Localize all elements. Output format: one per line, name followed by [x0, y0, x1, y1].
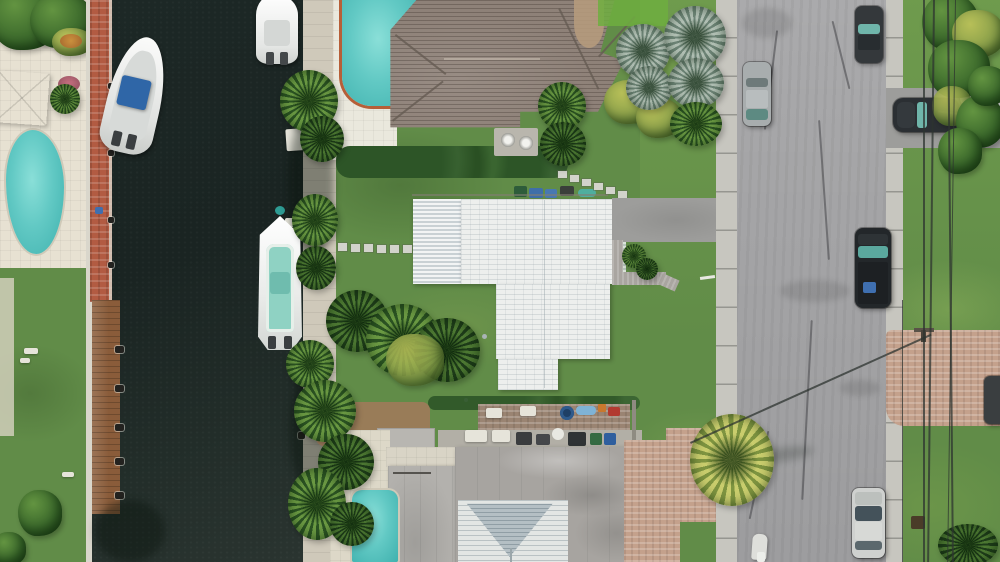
boat-hardtop — [264, 20, 290, 46]
round-blue-item — [560, 406, 574, 420]
power-line — [923, 0, 925, 562]
blue-bin — [604, 433, 616, 445]
white-table — [520, 406, 536, 416]
orange-flowers — [60, 34, 82, 48]
boat-engine — [280, 52, 288, 65]
teal-bucket — [275, 206, 285, 215]
grill — [536, 434, 550, 445]
lawn-furniture — [24, 348, 38, 354]
turf-patch — [598, 0, 668, 26]
stepping-stone — [558, 171, 567, 178]
orange-box — [598, 404, 606, 412]
dock-piling — [115, 458, 124, 465]
planter-palm — [636, 258, 658, 280]
boat-teal-deck — [258, 216, 302, 354]
tree-shadow-water — [95, 500, 165, 562]
car-windshield — [855, 506, 882, 521]
car-windshield — [746, 109, 768, 120]
backyard-fence — [412, 194, 608, 196]
stepping-stone — [338, 243, 347, 251]
car-dark-top-right — [855, 6, 883, 63]
dock-piling — [115, 385, 124, 392]
palm-cluster — [330, 502, 374, 546]
white-table — [486, 408, 502, 418]
roof-vent — [482, 334, 487, 339]
stepping-stone — [377, 245, 386, 253]
roof-seam — [544, 200, 545, 388]
grill — [516, 432, 532, 445]
stepping-stone — [606, 187, 615, 194]
ac-unit-fan — [519, 136, 533, 150]
dock-piling — [108, 262, 114, 268]
road-tar-patch — [840, 380, 880, 396]
car-roof — [855, 522, 882, 540]
lawn-furniture — [62, 472, 74, 477]
lawn-furniture — [20, 358, 30, 363]
small-palm — [50, 84, 80, 114]
car-windshield — [858, 24, 880, 34]
house-white-flat-roof-main — [461, 199, 612, 284]
boat-engine — [266, 52, 274, 65]
green-palm-street — [670, 102, 722, 146]
green-bin — [590, 433, 602, 445]
canal-bank-palm — [296, 246, 336, 290]
blue-bin — [529, 188, 543, 198]
car-silver-left — [743, 62, 771, 126]
blue-kayak — [576, 406, 596, 415]
round-bush — [18, 490, 62, 536]
white-box — [465, 430, 487, 442]
power-line — [902, 300, 903, 562]
house-white-roof-bottom-tab — [498, 359, 558, 390]
canal-bank-palm — [292, 194, 338, 246]
canal-bank-palm — [300, 116, 344, 162]
suv-hood — [897, 102, 915, 128]
dock-piling — [115, 346, 124, 353]
boat-engine — [268, 336, 276, 349]
white-box — [492, 430, 510, 442]
palm-over-hedge — [540, 122, 586, 166]
wood-dock — [92, 300, 120, 514]
patio-umbrella — [0, 70, 50, 126]
white-object-road — [757, 552, 765, 562]
stepping-stone — [618, 191, 627, 198]
boat-white-top — [256, 0, 298, 70]
road-tar-patch — [742, 8, 792, 38]
white-drum — [552, 428, 564, 440]
house-white-roof-corrugated-wing — [413, 199, 461, 284]
stepping-stone — [582, 179, 591, 186]
boat-engine — [284, 336, 292, 349]
red-cooler — [608, 407, 620, 416]
dock-piling — [115, 424, 124, 431]
car-rear-glass — [746, 78, 768, 87]
bismarck-silver-palm — [626, 66, 672, 110]
house-white-roof-column — [496, 284, 610, 359]
house-gray-roof-left-wing — [388, 466, 456, 562]
stepping-stone — [364, 244, 373, 252]
stepping-stone — [390, 245, 399, 253]
car-roof — [746, 90, 768, 108]
truck-windshield — [858, 246, 888, 258]
tropical-shrubs — [938, 128, 982, 174]
bismarck-silver-palm-street — [668, 58, 724, 108]
aerial-photo-canvas — [0, 0, 1000, 562]
left-stone-wall — [0, 278, 14, 436]
car-silver-bottom-right — [852, 488, 885, 558]
dark-bin — [568, 432, 586, 446]
stepping-stone — [351, 244, 360, 252]
roof-antenna — [393, 472, 431, 474]
bottom-patio-strip — [386, 447, 458, 467]
palm-cluster — [294, 380, 356, 442]
blue-item-truck-bed — [863, 282, 876, 293]
road-tar-patch — [780, 280, 850, 302]
blue-item-on-dock — [95, 207, 103, 214]
stepping-stone — [570, 175, 579, 182]
ac-unit-fan — [501, 133, 515, 147]
fan-palm-street — [690, 414, 774, 506]
stepping-stone — [403, 245, 412, 253]
car-hood — [855, 492, 882, 505]
paver-driveway-right — [886, 330, 1000, 426]
car-rear-glass — [855, 541, 882, 550]
car-roof — [858, 35, 880, 50]
stepping-stone — [594, 183, 603, 190]
boat-console — [270, 272, 290, 294]
banana-plant — [386, 334, 444, 386]
roof-ridge — [444, 58, 540, 60]
dock-piling — [108, 217, 114, 223]
corner-bush — [0, 532, 26, 562]
suv-windshield — [917, 102, 927, 128]
tropical-shrubs — [968, 66, 1000, 106]
car-dark-right-edge — [984, 376, 1000, 424]
truck-dark-right — [855, 228, 891, 308]
dock-piling — [115, 492, 124, 499]
gable-ridge — [510, 548, 512, 562]
truck-hood — [858, 234, 888, 245]
